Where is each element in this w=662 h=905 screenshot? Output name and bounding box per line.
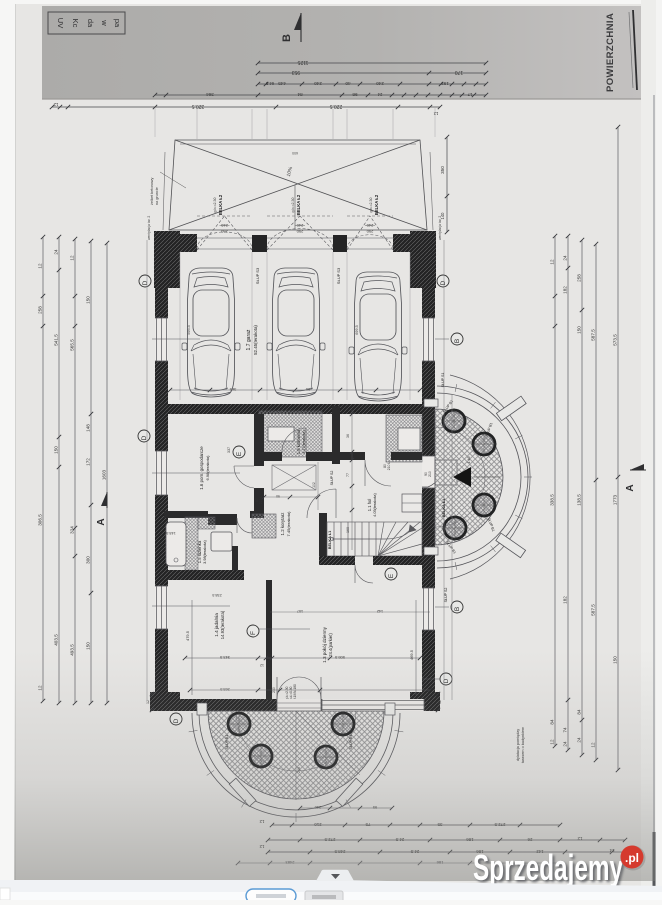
svg-text:w: w bbox=[100, 19, 109, 26]
svg-text:1773: 1773 bbox=[613, 494, 618, 505]
svg-text:24: 24 bbox=[563, 255, 568, 261]
svg-text:BELKA Ł2: BELKA Ł2 bbox=[374, 194, 379, 215]
svg-text:240: 240 bbox=[314, 81, 322, 86]
svg-text:BELKA Ł1: BELKA Ł1 bbox=[442, 499, 446, 517]
svg-text:338.5: 338.5 bbox=[550, 494, 555, 506]
svg-text:148: 148 bbox=[86, 424, 91, 432]
svg-text:699.5: 699.5 bbox=[355, 325, 359, 335]
svg-text:240: 240 bbox=[376, 81, 384, 86]
svg-text:1125: 1125 bbox=[297, 59, 308, 65]
svg-text:192: 192 bbox=[441, 81, 449, 86]
svg-text:BELKA Ł2: BELKA Ł2 bbox=[296, 194, 301, 215]
svg-text:D: D bbox=[440, 280, 447, 285]
svg-text:1.6 pom. gospodarcze: 1.6 pom. gospodarcze bbox=[199, 446, 204, 490]
svg-text:A: A bbox=[96, 518, 107, 525]
svg-text:Kc: Kc bbox=[71, 19, 80, 28]
svg-text:587.5: 587.5 bbox=[591, 604, 596, 616]
svg-text:953: 953 bbox=[292, 69, 301, 75]
svg-text:77: 77 bbox=[346, 473, 350, 477]
svg-text:238.5: 238.5 bbox=[212, 593, 222, 597]
svg-text:403.5: 403.5 bbox=[54, 634, 59, 646]
svg-text:12: 12 bbox=[433, 111, 438, 116]
svg-text:da: da bbox=[86, 19, 95, 28]
svg-text:7.45(terakota): 7.45(terakota) bbox=[286, 511, 291, 537]
svg-text:A: A bbox=[625, 484, 636, 491]
svg-text:258: 258 bbox=[577, 274, 582, 282]
svg-text:1.2 korytarz: 1.2 korytarz bbox=[280, 513, 285, 536]
svg-text:102: 102 bbox=[312, 482, 316, 488]
svg-text:SŁUP S2: SŁUP S2 bbox=[330, 471, 334, 486]
svg-text:wentylacja tar. 2: wentylacja tar. 2 bbox=[438, 216, 442, 240]
svg-text:3.98(terakota): 3.98(terakota) bbox=[203, 539, 207, 563]
svg-text:150: 150 bbox=[86, 642, 91, 650]
svg-text:36: 36 bbox=[346, 434, 350, 438]
svg-text:250: 250 bbox=[366, 229, 373, 234]
svg-text:300: 300 bbox=[86, 556, 91, 564]
svg-text:64.5: 64.5 bbox=[265, 81, 274, 86]
svg-text:1.8 kotłownia: 1.8 kotłownia bbox=[296, 429, 301, 454]
svg-text:210: 210 bbox=[428, 471, 432, 477]
svg-text:E: E bbox=[388, 573, 395, 578]
svg-text:150: 150 bbox=[577, 326, 582, 334]
svg-text:12: 12 bbox=[38, 263, 43, 269]
svg-text:BELKA Ł1: BELKA Ł1 bbox=[328, 531, 332, 549]
svg-text:.pl: .pl bbox=[625, 851, 639, 865]
svg-text:UV: UV bbox=[56, 18, 65, 28]
svg-text:E: E bbox=[236, 451, 243, 456]
svg-text:573.5: 573.5 bbox=[613, 334, 618, 346]
svg-text:324: 324 bbox=[70, 526, 75, 534]
svg-text:84: 84 bbox=[297, 92, 303, 97]
svg-text:479.5: 479.5 bbox=[185, 630, 190, 641]
svg-text:4.05(terakota): 4.05(terakota) bbox=[373, 492, 377, 516]
svg-text:600: 600 bbox=[292, 151, 298, 155]
svg-text:wentylacja tar. 2: wentylacja tar. 2 bbox=[147, 216, 151, 240]
svg-text:52.45(terakota): 52.45(terakota) bbox=[253, 325, 258, 355]
svg-text:350: 350 bbox=[440, 166, 445, 174]
svg-text:1.4 jadalnia: 1.4 jadalnia bbox=[214, 613, 219, 637]
svg-text:107: 107 bbox=[297, 609, 303, 613]
svg-text:250: 250 bbox=[296, 229, 303, 234]
svg-text:150: 150 bbox=[54, 446, 59, 454]
svg-text:182: 182 bbox=[563, 596, 568, 604]
svg-text:182: 182 bbox=[563, 286, 568, 294]
svg-text:14.93(terakota): 14.93(terakota) bbox=[220, 610, 225, 639]
svg-text:210 L: 210 L bbox=[387, 462, 391, 471]
svg-text:żelbet betonowy: żelbet betonowy bbox=[150, 177, 154, 205]
svg-text:pa: pa bbox=[113, 19, 122, 28]
svg-text:B: B bbox=[454, 607, 461, 611]
svg-text:98: 98 bbox=[352, 92, 358, 97]
svg-text:g.b.=2.30: g.b.=2.30 bbox=[291, 197, 295, 212]
svg-text:1.7 garaż: 1.7 garaż bbox=[246, 329, 252, 350]
svg-text:17: 17 bbox=[467, 92, 472, 97]
svg-text:337: 337 bbox=[227, 447, 231, 453]
svg-text:565.5: 565.5 bbox=[70, 339, 75, 351]
svg-text:3.27(terakota): 3.27(terakota) bbox=[302, 429, 306, 453]
svg-text:12: 12 bbox=[53, 102, 58, 107]
svg-text:364: 364 bbox=[206, 92, 214, 97]
svg-text:BELKA Ł2: BELKA Ł2 bbox=[218, 194, 223, 215]
svg-text:g.b.=2.30: g.b.=2.30 bbox=[213, 197, 217, 212]
svg-text:587.5: 587.5 bbox=[591, 329, 596, 341]
svg-text:306.5: 306.5 bbox=[38, 514, 43, 526]
svg-text:SŁUP S3: SŁUP S3 bbox=[255, 267, 260, 284]
svg-text:170: 170 bbox=[455, 69, 464, 75]
svg-text:1.1 hol: 1.1 hol bbox=[367, 499, 372, 512]
svg-text:Sprzedajemy: Sprzedajemy bbox=[473, 847, 623, 888]
svg-text:1.5 łazienka: 1.5 łazienka bbox=[197, 540, 202, 563]
svg-text:SŁUP S3: SŁUP S3 bbox=[336, 267, 341, 284]
svg-text:D: D bbox=[142, 280, 149, 285]
svg-text:148.5: 148.5 bbox=[166, 531, 176, 535]
svg-text:210 L: 210 L bbox=[259, 496, 263, 505]
svg-text:445: 445 bbox=[278, 81, 286, 86]
svg-text:138.5: 138.5 bbox=[577, 494, 582, 506]
svg-text:POWIERZCHNIA: POWIERZCHNIA bbox=[605, 13, 616, 92]
svg-text:220.5: 220.5 bbox=[330, 103, 343, 109]
svg-text:g.b.=2.30: g.b.=2.30 bbox=[369, 197, 373, 212]
svg-text:12: 12 bbox=[70, 255, 75, 261]
svg-text:B: B bbox=[454, 339, 461, 343]
svg-text:24: 24 bbox=[377, 92, 382, 97]
svg-text:320.5: 320.5 bbox=[192, 103, 205, 109]
svg-text:172: 172 bbox=[86, 458, 91, 466]
svg-text:1.40: 1.40 bbox=[467, 457, 471, 464]
svg-text:250: 250 bbox=[220, 229, 227, 234]
svg-text:24: 24 bbox=[54, 249, 59, 255]
svg-text:B: B bbox=[281, 34, 293, 42]
svg-text:90: 90 bbox=[276, 494, 280, 498]
svg-text:1603: 1603 bbox=[102, 469, 107, 480]
svg-text:142: 142 bbox=[377, 609, 383, 613]
svg-text:F: F bbox=[250, 631, 257, 635]
svg-text:150: 150 bbox=[86, 296, 91, 304]
svg-text:541.5: 541.5 bbox=[54, 334, 59, 346]
svg-text:na gruncie: na gruncie bbox=[155, 187, 159, 205]
svg-text:40: 40 bbox=[345, 81, 351, 86]
svg-text:SŁUP S2: SŁUP S2 bbox=[444, 588, 448, 603]
svg-text:6.98(terakota): 6.98(terakota) bbox=[205, 455, 210, 481]
svg-text:SŁUP S1: SŁUP S1 bbox=[441, 373, 445, 388]
svg-text:258: 258 bbox=[38, 306, 43, 314]
svg-text:12: 12 bbox=[550, 259, 555, 265]
